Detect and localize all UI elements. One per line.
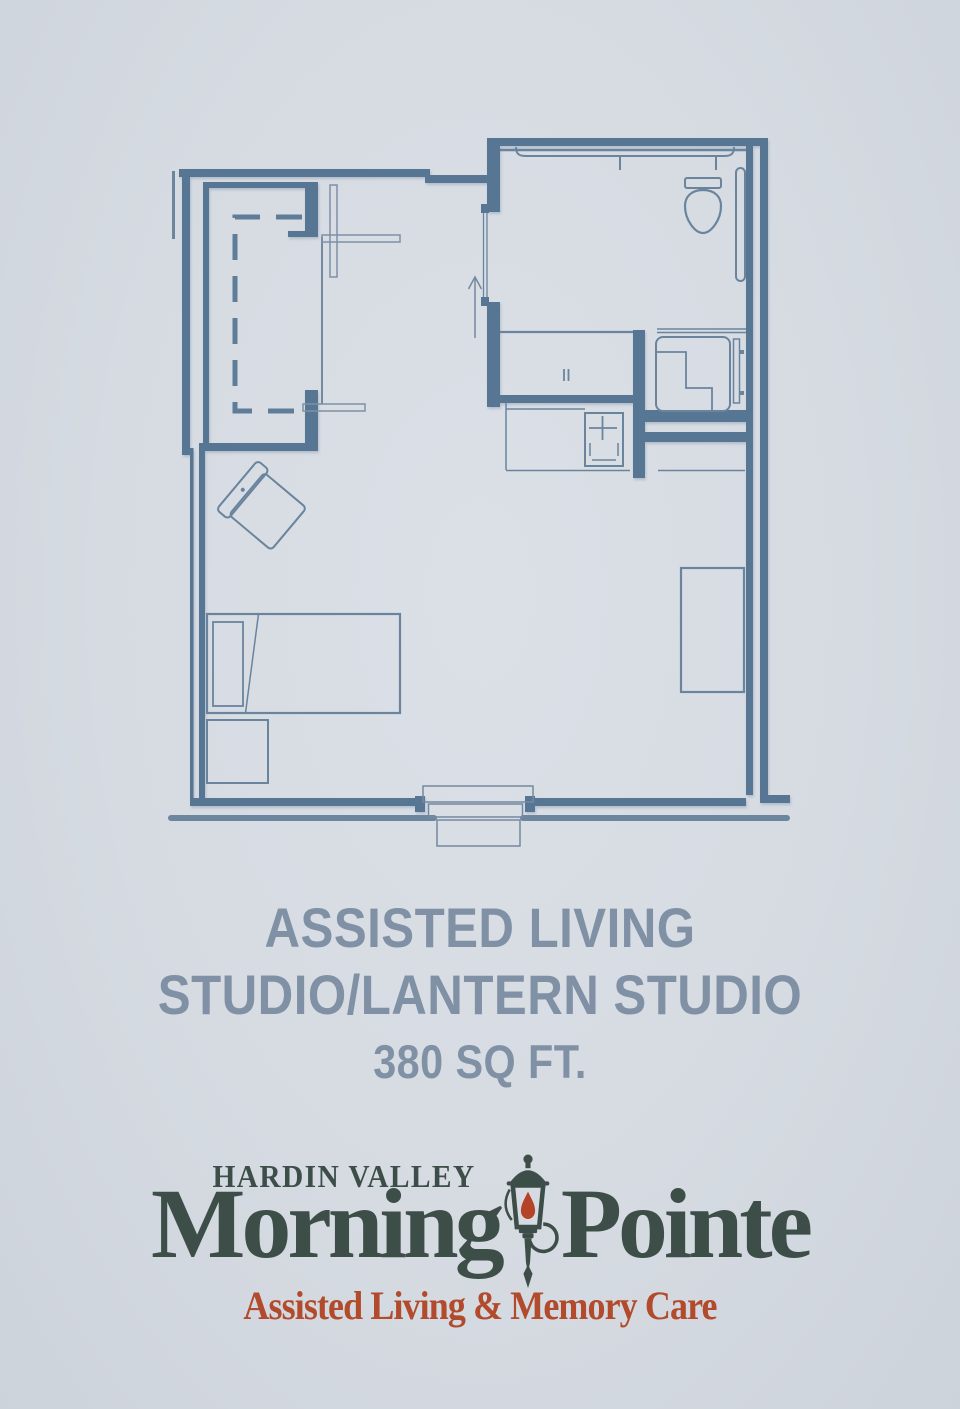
brand-word-pointe: Pointe bbox=[561, 1174, 809, 1274]
floor-plan bbox=[155, 125, 815, 855]
sink-with-faucet bbox=[585, 413, 623, 466]
lantern-icon bbox=[491, 1153, 565, 1289]
morning-pointe-logo: HARDIN VALLEY Morning Pointe Assisted Li bbox=[0, 1148, 960, 1358]
brand-wordmark: Morning Pointe bbox=[0, 1174, 960, 1289]
flame bbox=[521, 1192, 535, 1219]
vanity bbox=[500, 332, 633, 381]
shower-door bbox=[734, 339, 740, 403]
plan-area-text: 380 SQ FT. bbox=[58, 1028, 903, 1095]
bed bbox=[207, 614, 400, 713]
pillow bbox=[213, 622, 243, 706]
window bbox=[423, 786, 533, 846]
walls bbox=[179, 138, 790, 812]
shower-bench bbox=[656, 352, 712, 410]
grab-bar bbox=[736, 168, 745, 281]
furniture bbox=[207, 460, 744, 783]
brand-tagline: Assisted Living & Memory Care bbox=[48, 1282, 912, 1329]
closet-rod bbox=[235, 217, 302, 411]
pocket-door bbox=[481, 204, 489, 306]
toilet bbox=[685, 178, 721, 233]
exterior-lines bbox=[168, 171, 790, 821]
plan-title-line1: ASSISTED LIVING bbox=[58, 894, 903, 961]
armchair bbox=[216, 460, 309, 553]
blanket-fold bbox=[246, 614, 259, 713]
entry-arrow bbox=[469, 277, 482, 338]
dresser bbox=[681, 568, 744, 692]
plan-title: ASSISTED LIVING STUDIO/LANTERN STUDIO 38… bbox=[0, 894, 960, 1095]
plan-title-line2: STUDIO/LANTERN STUDIO bbox=[58, 961, 903, 1028]
brand-word-morning: Morning bbox=[151, 1174, 501, 1274]
nightstand bbox=[207, 720, 268, 783]
shower bbox=[656, 329, 746, 411]
